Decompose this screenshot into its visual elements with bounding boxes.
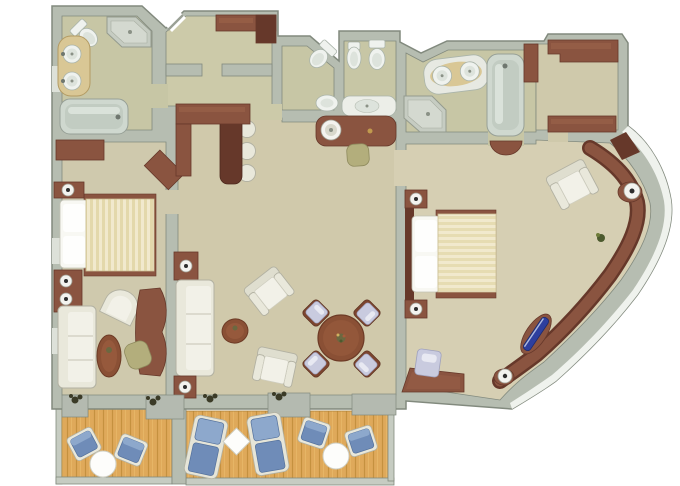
dresser — [56, 140, 104, 160]
hall-partition-wall-a — [166, 64, 202, 76]
duvet — [438, 214, 496, 292]
floor-plan-page — [0, 0, 680, 486]
bathtub-master — [60, 99, 128, 134]
sofa-living — [176, 280, 214, 376]
railing-left-bottom — [56, 477, 172, 484]
door-opening-bath1 — [150, 84, 168, 108]
door-opening-bedroom2 — [394, 150, 408, 186]
bed-guest — [405, 208, 496, 300]
deck-table-round-1 — [90, 451, 116, 477]
duvet — [86, 199, 154, 271]
hall-partition-wall-b — [222, 64, 272, 76]
railing-right-bottom — [186, 478, 394, 485]
desk-chair-guest — [414, 348, 441, 377]
twin-sink-vanity-master — [58, 36, 90, 96]
door-sill-4 — [352, 394, 396, 415]
table-decor — [233, 326, 238, 331]
window-2 — [52, 238, 60, 264]
floor-plan — [0, 0, 680, 486]
toilet-wc — [369, 40, 385, 70]
railing-right-side — [388, 411, 394, 481]
bidet — [347, 42, 361, 69]
deck-table-round-2 — [323, 443, 349, 469]
bed-master — [60, 194, 156, 276]
sofa-master — [58, 306, 96, 388]
bathtub-2 — [487, 54, 524, 136]
bath2-cabinet — [524, 44, 538, 82]
door-opening-bedroom1 — [164, 190, 180, 214]
table-decor — [106, 347, 112, 353]
sink-counter-wc — [342, 96, 396, 116]
railing-left-side — [56, 407, 62, 484]
vanity-stool — [346, 143, 369, 166]
door-sill-2 — [146, 395, 184, 419]
vanity-knob — [368, 129, 373, 134]
